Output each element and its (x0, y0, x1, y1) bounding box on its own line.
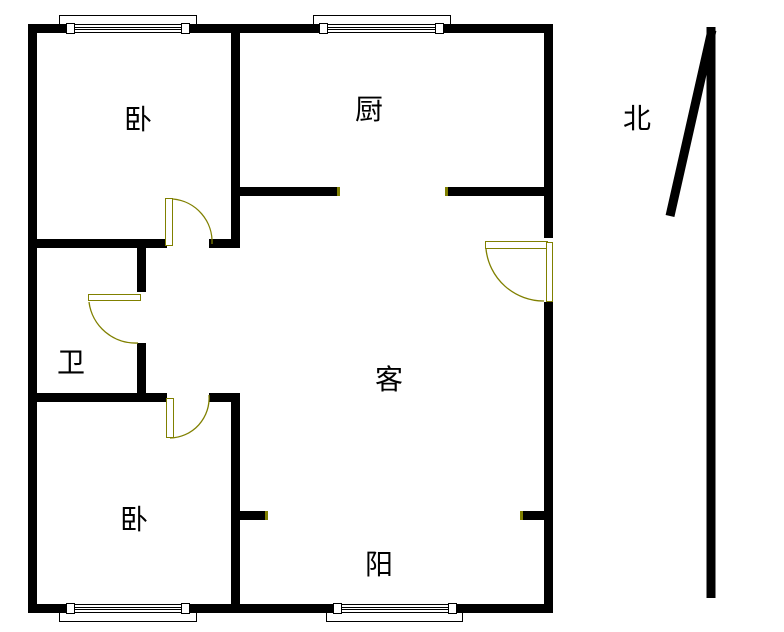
window-bedroom-top (66, 24, 190, 33)
window-kitchen (319, 24, 444, 33)
wall-left (28, 24, 37, 613)
overlay-graphics (0, 0, 784, 632)
wall-end-tick-balcony-left (265, 511, 268, 520)
window-sill-balcony (326, 612, 463, 622)
wall-hall-top (37, 239, 167, 248)
door-arc-bedroom-top (173, 199, 212, 244)
door-frame-entry (546, 242, 553, 302)
wall-kitchen-bottom-right (445, 187, 544, 196)
window-end-post (181, 603, 190, 614)
window-bedroom-bottom (66, 604, 190, 613)
window-end-post (319, 23, 328, 34)
wall-bottom-middle (190, 604, 333, 613)
wall-kitchen-bottom-left (240, 187, 340, 196)
label-kitchen: 厨 (355, 96, 383, 124)
window-balcony (333, 604, 457, 613)
door-leaf-bathroom (88, 294, 141, 301)
door-leaf-bedroom-top (165, 198, 173, 246)
wall-bottom-right (457, 604, 553, 613)
wall-bathroom-right-upper (137, 248, 146, 292)
door-arc-entry (486, 249, 544, 301)
wall-bathroom-right-lower (137, 343, 146, 393)
door-arc-bedroom-bottom (170, 395, 209, 438)
window-pane-lines (319, 27, 444, 30)
window-end-post (448, 603, 457, 614)
label-north: 北 (623, 105, 651, 133)
window-pane-lines (66, 27, 190, 30)
wall-top-right (444, 24, 553, 33)
door-arc-bathroom (89, 302, 138, 343)
wall-right-above-entry (544, 24, 553, 238)
label-bathroom: 卫 (57, 349, 85, 377)
label-living-room: 客 (375, 366, 403, 394)
window-pane-lines (333, 607, 457, 610)
window-sill-bedroom-bottom (59, 612, 197, 622)
window-pane-lines (66, 607, 190, 610)
wall-end-tick-kitchen-left (337, 187, 340, 196)
wall-bedroom2-right-divider (231, 393, 240, 613)
label-balcony: 阳 (365, 551, 393, 579)
wall-bathroom-bottom (37, 393, 167, 402)
wall-balcony-stub-right (521, 511, 544, 520)
floor-plan-canvas: 卧 厨 北 卫 客 阳 卧 (0, 0, 784, 632)
window-end-post (333, 603, 342, 614)
wall-end-tick-balcony-right (520, 511, 523, 520)
wall-balcony-stub-left (240, 511, 266, 520)
window-end-post (66, 603, 75, 614)
label-bedroom-top: 卧 (124, 106, 152, 134)
label-bedroom-bottom: 卧 (120, 506, 148, 534)
wall-end-tick-kitchen-right (445, 187, 448, 196)
window-end-post (435, 23, 444, 34)
wall-bedroom-kitchen-divider (231, 33, 240, 248)
window-end-post (66, 23, 75, 34)
north-arrow-diagonal-line (670, 30, 712, 216)
window-end-post (181, 23, 190, 34)
wall-top-middle (190, 24, 319, 33)
door-leaf-bedroom-bottom (166, 398, 174, 438)
door-leaf-entry (485, 241, 548, 249)
wall-right-below-entry (544, 302, 553, 613)
wall-hall-top-right (209, 239, 240, 248)
